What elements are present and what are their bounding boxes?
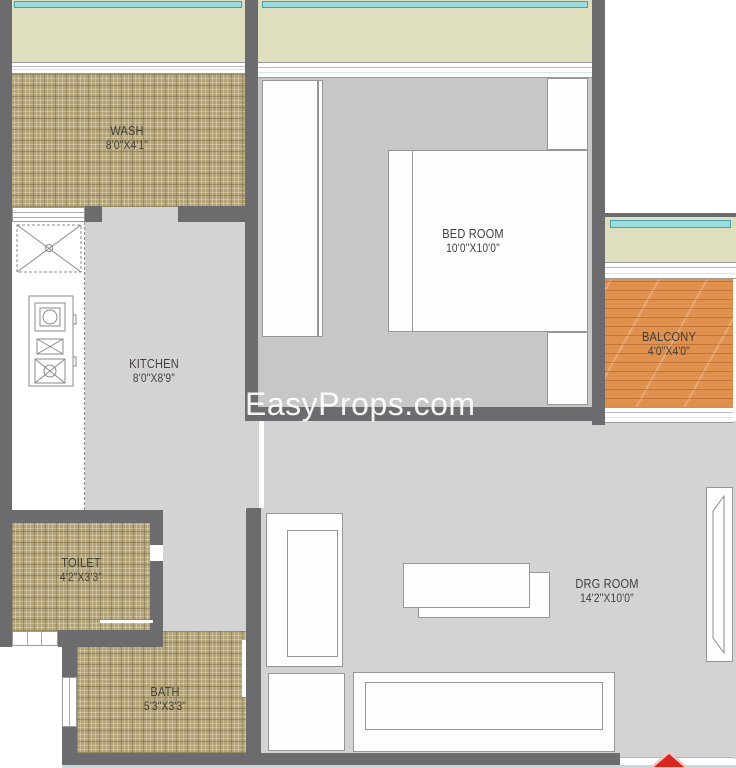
toilet-window [12,631,58,646]
balcony-window-glass [610,220,731,228]
entrance-arrow-icon [654,754,684,767]
tv-unit [706,487,733,662]
kitchen-label-name: KITCHEN [129,356,179,371]
balcony-upper-sill [605,262,736,279]
toilet-door-opening [150,545,163,561]
bed-pillow-divider [412,150,413,332]
wash-label: WASH 8'0"X4'1" [106,123,148,153]
bedroom-window-band [258,0,592,62]
sink-icon [16,224,82,273]
wardrobe-door-strip [318,80,323,337]
bedroom-label-dims: 10'0"X10'0" [442,241,504,256]
kitchen-drg-opening [245,421,258,508]
bath-label: BATH 5'3"X3'3" [144,684,186,714]
bath-label-name: BATH [144,684,186,699]
wall-left [0,0,12,647]
bath-window [62,677,77,727]
toilet-label: TOILET 4'2"X3'3" [60,555,102,585]
wash-label-name: WASH [106,123,148,138]
bath-door-leaf [242,640,246,697]
kitchen-label: KITCHEN 8'0"X8'9" [129,356,179,386]
wall-toilet-right [150,510,163,632]
wall-bedroom-right [592,0,605,425]
single-sofa-cushion [287,530,338,657]
wash-window-sill [11,62,245,74]
balcony-lower-sill [605,407,733,423]
drg-label-name: DRG ROOM [575,576,638,591]
wardrobe [262,80,318,337]
center-table [403,563,530,608]
kitchen-door-leaf [259,421,264,508]
kitchen-label-dims: 8'0"X8'9" [129,371,179,386]
wall-toilet-top [0,510,163,523]
side-table [268,673,345,751]
stove-icon [28,295,77,388]
wall-bath-top [58,630,163,647]
toilet-door-leaf [100,620,153,623]
bedroom-label: BED ROOM 10'0"X10'0" [442,226,504,256]
bath-label-dims: 5'3"X3'3" [144,699,186,714]
lobby-floor [163,510,246,633]
wash-window-glass [14,1,242,8]
drg-label: DRG ROOM 14'2"X10'0" [575,576,638,606]
drg-label-dims: 14'2"X10'0" [575,591,638,606]
bedroom-window-sill [258,62,592,78]
wall-kitchen-top-b [178,206,245,222]
long-sofa-cushion [365,682,603,730]
wall-wash-bedroom [245,0,258,421]
wall-bath-right [246,508,261,766]
wall-toilet-bottom-left [0,630,12,647]
tv-icon [707,488,732,661]
watermark: EasyProps.com [245,386,476,423]
bedside-cabinet-bottom [547,332,588,405]
bedroom-label-name: BED ROOM [442,226,504,241]
bedroom-window-glass [262,1,588,8]
floor-plan: WASH 8'0"X4'1" KITCHEN 8'0"X8'9" BED ROO… [0,0,736,768]
balcony-label-name: BALCONY [642,329,696,344]
balcony-label: BALCONY 4'0"X4'0" [642,329,696,359]
wash-window-band [11,0,245,62]
kitchen-sliding-window [12,207,85,222]
wall-kitchen-top-a [85,206,102,222]
toilet-label-dims: 4'2"X3'3" [60,570,102,585]
wash-label-dims: 8'0"X4'1" [106,138,148,153]
bedside-cabinet-top [547,78,588,150]
toilet-label-name: TOILET [60,555,102,570]
balcony-label-dims: 4'0"X4'0" [642,344,696,359]
